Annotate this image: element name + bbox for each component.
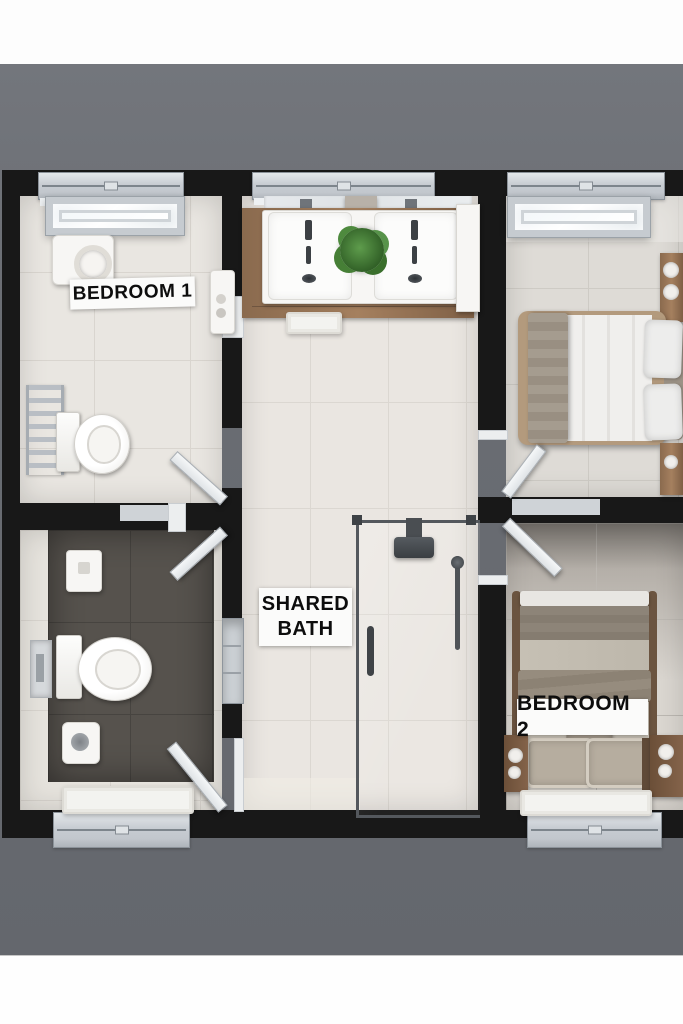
window-bottom-bedroom2 xyxy=(527,812,662,848)
nightstand-b2l-item xyxy=(508,748,523,763)
band-bottom-white xyxy=(0,955,683,1024)
nightstand-b2r-item2 xyxy=(658,764,672,778)
wall2-upper xyxy=(478,196,506,430)
bed-nook-pillow-2 xyxy=(643,383,683,440)
wc-bath-mat xyxy=(62,786,194,814)
label-shared-bath-line2: BATH xyxy=(277,617,333,642)
bath-wall-niche xyxy=(222,618,244,704)
nightstand-nook-bottom-item xyxy=(664,455,678,469)
vanity-drawer-line xyxy=(252,306,464,307)
rain-shower-head xyxy=(394,537,434,558)
bed2-pillow-left xyxy=(526,738,594,788)
window-top-bedroom1 xyxy=(38,172,184,200)
bed2-foot-sheet xyxy=(520,591,649,606)
label-shared-bath-line1: SHARED xyxy=(262,592,349,617)
shower-door-handle xyxy=(367,626,374,676)
bed2-blanket xyxy=(520,606,649,640)
shower-corner-fitting-left xyxy=(352,515,362,525)
bath-tall-cabinet xyxy=(456,204,480,312)
window-top-bedroom2 xyxy=(507,172,665,200)
wall1-mid xyxy=(222,488,242,620)
skylight-bedroom1 xyxy=(46,197,184,235)
skylight-bedroom2 xyxy=(508,197,650,237)
label-bedroom1: BEDROOM 1 xyxy=(70,276,196,309)
drain-right xyxy=(408,274,422,283)
nightstand-nook-bottom xyxy=(660,443,683,495)
vanity-bath-mat xyxy=(286,312,342,334)
flush-plate-slot xyxy=(36,654,44,682)
shower-head-mount xyxy=(406,518,422,538)
right-doorway-header xyxy=(512,499,600,515)
hand-shower-rail xyxy=(455,556,460,650)
mirror-reflection-marks xyxy=(300,199,312,208)
wc-cistern-button xyxy=(78,562,90,574)
bed2-duvet xyxy=(520,640,649,670)
wc-lower-door-jamb xyxy=(234,738,244,812)
hand-sprayer-dial xyxy=(71,733,89,751)
rolled-towel xyxy=(74,245,112,283)
label-bedroom1-text: BEDROOM 1 xyxy=(72,280,192,307)
bed-nook-duvet xyxy=(560,315,652,441)
shower-corner-fitting-right xyxy=(466,515,476,525)
nightstand-b2r-item xyxy=(658,744,674,760)
label-shared-bath: SHARED BATH xyxy=(259,588,352,646)
bed2-rail-right xyxy=(648,591,657,745)
left-doorway-jamb xyxy=(168,503,186,532)
label-bedroom2-text: BEDROOM 2 xyxy=(517,691,648,744)
drain-left xyxy=(302,274,316,283)
toilet1-bowl xyxy=(74,414,130,474)
wall2-cap-lower xyxy=(478,575,508,585)
nightstand-towel-2 xyxy=(663,284,679,300)
wall2-cap-upper xyxy=(478,430,508,440)
toilet2-bowl xyxy=(78,637,152,701)
faucet-right-handle xyxy=(411,220,418,240)
bed-nook-pillow-1 xyxy=(643,319,683,378)
shelf-items xyxy=(216,308,226,318)
label-bedroom2: BEDROOM 2 xyxy=(517,699,648,735)
hand-shower-head xyxy=(451,556,464,569)
nightstand-bedroom2-left xyxy=(504,735,528,792)
bath-wall-niche-shelves xyxy=(223,645,241,647)
potted-plant xyxy=(340,228,384,272)
wall1-lower xyxy=(222,700,242,738)
wall-shelf-bedroom1 xyxy=(210,270,235,334)
nightstand-towel-1 xyxy=(663,262,679,278)
wall-left xyxy=(2,170,20,838)
window-bottom-wc xyxy=(53,812,190,848)
faucet-left-handle xyxy=(305,220,312,240)
bedroom2-rug xyxy=(520,790,652,816)
faucet-left-spout xyxy=(306,246,311,264)
wall2-lower xyxy=(478,583,506,810)
nightstand-b2l-item2 xyxy=(508,766,521,779)
bed-nook-folded-blanket xyxy=(528,313,568,443)
faucet-right-spout xyxy=(412,246,417,264)
floorplan-render: BEDROOM 1 SHARED BATH BEDROOM 2 xyxy=(0,0,683,1024)
